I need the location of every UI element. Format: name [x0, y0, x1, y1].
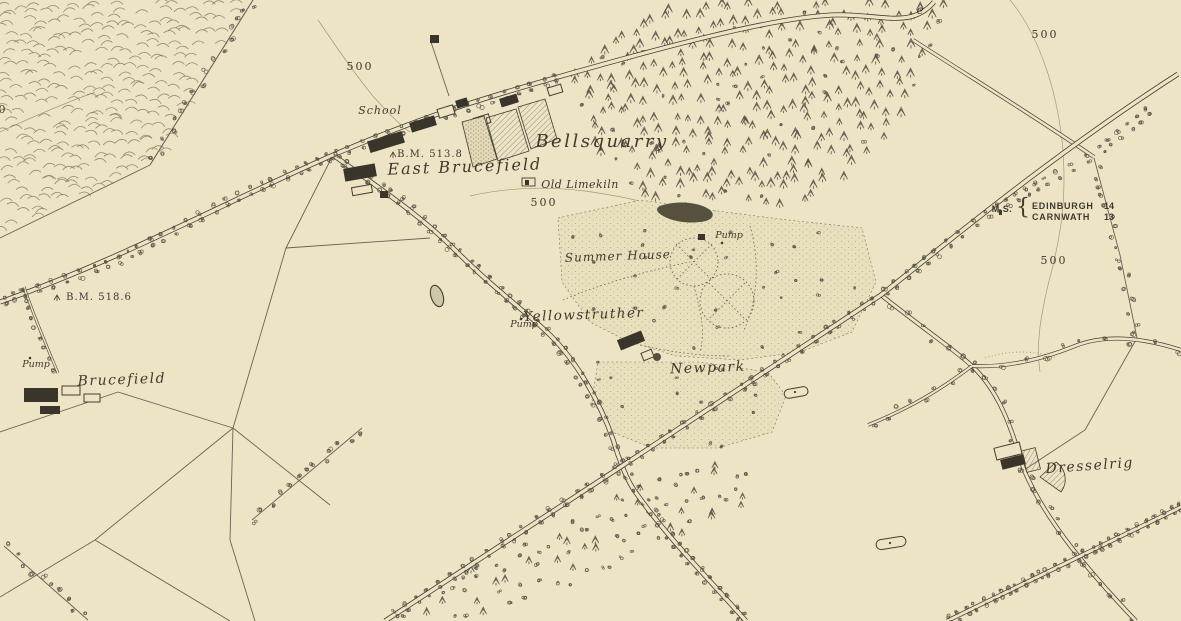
- map-label-contour-500-w: 500: [0, 103, 8, 116]
- map-label-milestone-miles-edinburgh: 14: [1104, 201, 1114, 211]
- map-label-milestone-miles-carnwath: 13: [1104, 212, 1114, 222]
- map-label-milestone-abbr: M.S.: [992, 204, 1013, 214]
- map-label-brucefield: Brucefield: [76, 370, 166, 389]
- map-label-contour-500-center: 500: [531, 196, 558, 209]
- map-label-contour-500-e: 500: [1041, 254, 1068, 267]
- historical-map-viewport: SchoolB.M. 513.8East BrucefieldBellsquar…: [0, 0, 1181, 621]
- map-canvas: SchoolB.M. 513.8East BrucefieldBellsquar…: [0, 0, 1181, 621]
- map-label-old-limekiln: Old Limekiln: [541, 178, 619, 191]
- map-label-newpark: Newpark: [669, 359, 746, 378]
- map-label-school: School: [358, 104, 402, 117]
- map-label-stray-letter: e: [916, 3, 923, 17]
- map-label-pump-brucefield: Pump: [21, 359, 50, 370]
- map-label-pump-garden: Pump: [714, 230, 743, 241]
- map-label-bellsquarry: Bellsquarry: [534, 131, 668, 152]
- map-label-milestone-dest-carnwath: CARNWATH: [1032, 212, 1090, 222]
- map-label-bm-518-6: B.M. 518.6: [66, 292, 132, 303]
- map-label-milestone-dest-edinburgh: EDINBURGH: [1032, 201, 1094, 211]
- map-label-contour-500-nw: 500: [347, 60, 374, 73]
- map-label-contour-500-ne: 500: [1032, 28, 1059, 41]
- map-label-milestone-brace: {: [1016, 195, 1030, 220]
